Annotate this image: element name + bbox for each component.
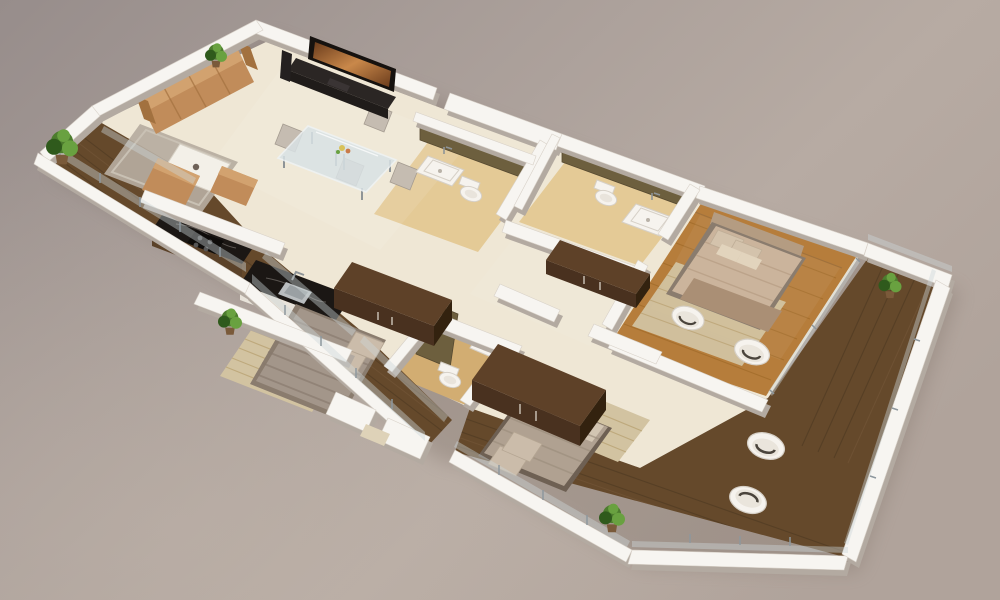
floor-plan-render: 3D isometric cutaway floor plan render o… [0, 0, 1000, 600]
table-decor-bowl [193, 164, 199, 170]
floor-speaker [280, 50, 292, 82]
apartment-isometric-scene: 3D isometric cutaway floor plan render o… [0, 0, 1000, 600]
flower-centerpiece [339, 145, 345, 151]
